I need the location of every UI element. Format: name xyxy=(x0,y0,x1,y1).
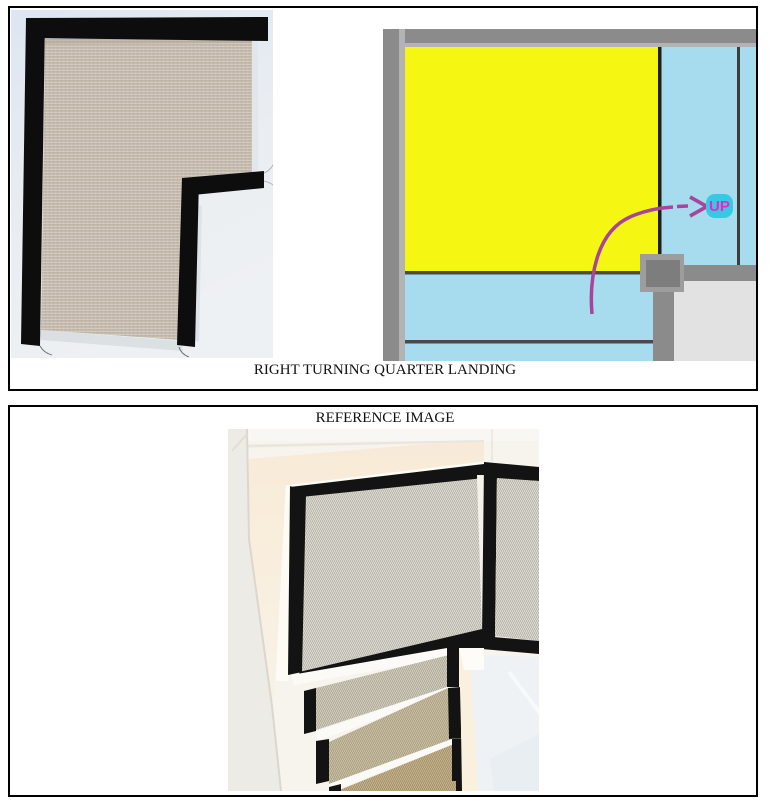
svg-text:UP: UP xyxy=(709,198,730,215)
